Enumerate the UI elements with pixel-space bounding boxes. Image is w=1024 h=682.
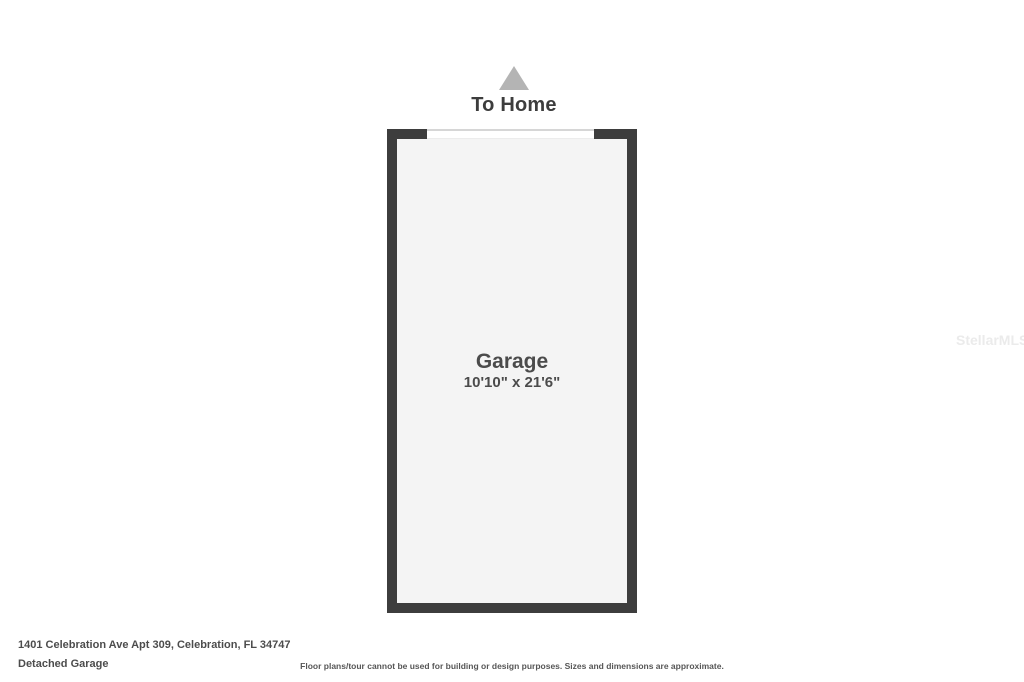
stellar-mls-watermark: StellarMLS	[956, 332, 1024, 348]
disclaimer-text: Floor plans/tour cannot be used for buil…	[0, 661, 1024, 671]
to-home-arrow-icon	[499, 66, 529, 90]
room-dimensions: 10'10" x 21'6"	[464, 374, 560, 393]
floor-plan-page: To Home Garage 10'10" x 21'6" StellarMLS…	[0, 0, 1024, 682]
garage-door-opening	[427, 129, 594, 139]
room-label: Garage 10'10" x 21'6"	[464, 350, 560, 393]
address-text: 1401 Celebration Ave Apt 309, Celebratio…	[18, 639, 290, 652]
room-name: Garage	[464, 350, 560, 374]
to-home-label: To Home	[389, 94, 639, 117]
garage-floor-plan: Garage 10'10" x 21'6"	[387, 129, 637, 613]
